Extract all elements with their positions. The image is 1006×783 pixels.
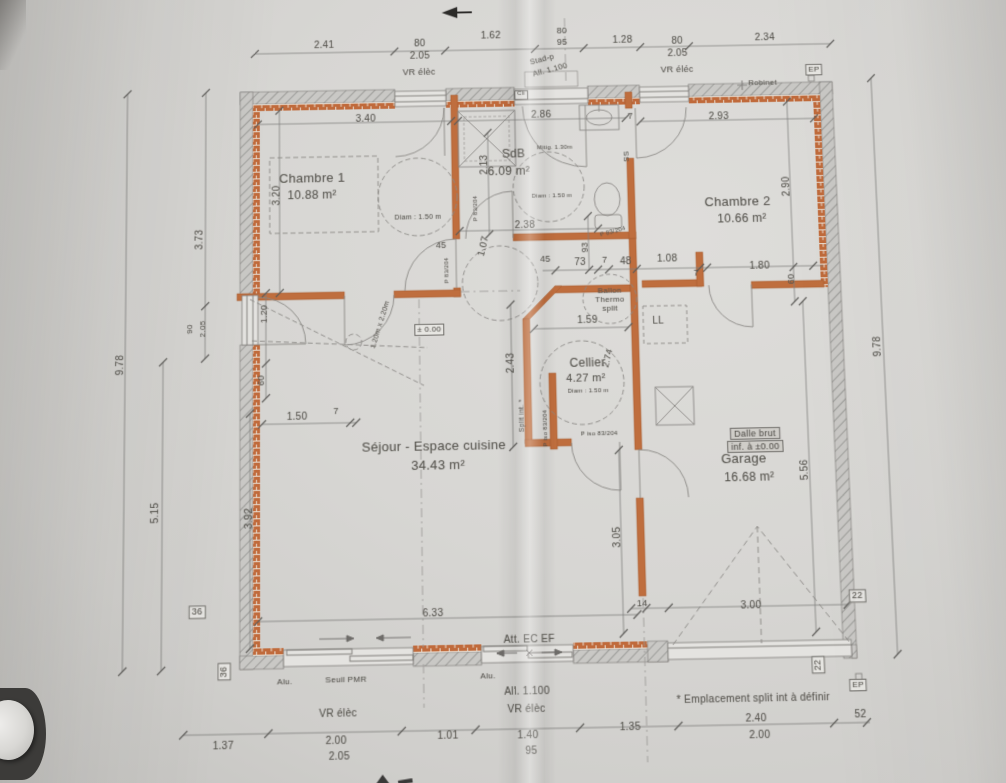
- dim-top-128: 1.28: [612, 34, 632, 45]
- vr-elec-top-right: VR éléc: [660, 64, 693, 74]
- dim-45a: 45: [436, 240, 447, 250]
- split-int: Split int. *: [518, 399, 526, 432]
- dim-top-80b: 80: [557, 26, 568, 36]
- dim-7-left: 7: [333, 406, 338, 416]
- alu-a: Alu.: [277, 676, 292, 686]
- diam-chambre1: Diam : 1.50 m: [394, 213, 441, 221]
- dim-392: 3.92: [243, 508, 254, 529]
- dim-633: 6.33: [422, 607, 443, 619]
- dim-top-205a: 2.05: [410, 50, 430, 61]
- mitig: Mitig. 1.30m: [537, 145, 573, 151]
- dim-7b: 7: [694, 268, 700, 278]
- dim-93: 93: [580, 242, 590, 253]
- vr-elec-top-left: VR élèc: [403, 67, 436, 77]
- alu-b: Alu.: [480, 671, 495, 681]
- dim-45b: 45: [540, 254, 551, 264]
- ep-marker-top: [808, 75, 814, 81]
- dim-340: 3.40: [356, 113, 376, 124]
- diam-cellier: Diam : 1.50 m: [568, 388, 609, 395]
- dim-bot-95: 95: [525, 745, 537, 757]
- dim-left-515: 5.15: [149, 502, 160, 523]
- bay-window-sejour: [284, 648, 414, 667]
- window-swing-chambre1: [395, 108, 445, 157]
- washing-machine: [643, 305, 688, 343]
- dim-top-205c: 2.05: [667, 48, 687, 59]
- porte-83-204-c: P 83/204: [444, 257, 450, 283]
- dim-159: 1.59: [577, 314, 598, 325]
- room-sejour-area: 34.43 m²: [411, 456, 465, 472]
- dim-bot-200b: 2.00: [749, 729, 771, 741]
- turning-circle-chambre1: [378, 157, 458, 236]
- ballon-line1: Ballon: [598, 285, 622, 294]
- ep-bottom: EP: [849, 679, 867, 692]
- robinet: Robinet: [748, 77, 777, 86]
- entry-door-opening: [514, 71, 588, 105]
- door-cellier-arc: [571, 442, 620, 491]
- dim-120: 1.20: [259, 305, 269, 324]
- dim-top-80a: 80: [414, 38, 426, 49]
- sliding-arrows: [319, 634, 411, 642]
- garage-vent-box: [655, 387, 694, 426]
- dim-ss: SS: [621, 151, 630, 162]
- dim-top-80c: 80: [671, 35, 683, 46]
- room-garage-area: 16.68 m²: [724, 469, 775, 484]
- room-sejour: Séjour - Espace cuisine: [362, 436, 506, 454]
- plan-sheet: 2.41802.051.6280951.28802.052.34VR élècS…: [0, 0, 1006, 783]
- box-36a: 36: [189, 605, 206, 619]
- room-sdb-area: 6.09 m²: [488, 164, 530, 178]
- bottom-edge-marks: [373, 774, 412, 783]
- dim-286: 2.86: [531, 109, 551, 120]
- dim-left-373: 3.73: [194, 229, 205, 249]
- dim-238: 2.38: [514, 219, 535, 230]
- plan-drawing: [0, 0, 1006, 783]
- dim-bot-140: 1.40: [517, 729, 538, 741]
- dim-60-right: 60: [786, 274, 796, 285]
- box-22b: 22: [811, 656, 825, 673]
- porte-iso-83-204-a: P iso 83/204: [543, 410, 550, 447]
- box-36b: 36: [218, 663, 232, 681]
- dim-bot-200a: 2.00: [326, 735, 347, 747]
- room-sdb: SdB: [502, 147, 525, 161]
- dim-left-978: 9.78: [115, 355, 126, 376]
- att-ec-ef: Att. EC EF: [503, 633, 554, 645]
- dim-213: 2.13: [479, 155, 490, 175]
- toilet: [594, 183, 622, 229]
- dim-bot-205: 2.05: [329, 751, 350, 763]
- garage-door-trace: [669, 525, 849, 645]
- dim-left-205: 2.05: [198, 321, 207, 338]
- ballon-line2: Thermo: [595, 294, 624, 303]
- room-chambre1: Chambre 1: [279, 170, 345, 186]
- floor-plan-photo: 2.41802.051.6280951.28802.052.34VR élècS…: [0, 0, 1006, 783]
- room-chambre2-area: 10.66 m²: [717, 211, 767, 225]
- dim-243: 2.43: [505, 353, 516, 374]
- room-chambre1-area: 10.88 m²: [288, 188, 337, 202]
- dim-bot-52: 52: [854, 708, 867, 720]
- north-arrow: [442, 7, 472, 19]
- dim-556: 5.56: [799, 459, 811, 480]
- dim-293: 2.93: [708, 111, 729, 122]
- attic-hatch: [250, 296, 428, 388]
- room-cellier-area: 4.27 m²: [566, 372, 606, 385]
- cli-tag: Cli: [514, 90, 528, 99]
- interior-walls: [237, 89, 837, 604]
- window-bottom-2: [481, 645, 573, 663]
- door-arcs: [258, 102, 759, 505]
- dim-150: 1.50: [287, 411, 308, 422]
- room-cellier: Cellier: [569, 355, 605, 370]
- turning-circle-sdb: [513, 151, 585, 222]
- dim-108: 1.08: [657, 253, 678, 264]
- dim-top-234: 2.34: [754, 32, 775, 43]
- dalle-brut-line1: Dalle brut: [730, 427, 780, 440]
- vr-elec-bottom-1: VR élèc: [319, 707, 357, 719]
- turning-circle-hall: [462, 245, 539, 321]
- ballon-line3: split: [602, 303, 618, 312]
- door-garage-arc: [639, 449, 689, 498]
- dim-14: 14: [637, 598, 648, 608]
- room-garage: Garage: [721, 450, 767, 466]
- porte-83-204-a: P 83/204: [473, 196, 479, 222]
- dim-7a: 7: [602, 255, 608, 265]
- dim-bot-135: 1.35: [620, 721, 641, 733]
- dim-bot-137: 1.37: [213, 740, 234, 752]
- dim-300: 3.00: [740, 599, 761, 611]
- all-1100-bottom: All. 1.100: [504, 685, 550, 697]
- door-chambre2-arc: [635, 107, 688, 158]
- dim-bot-101: 1.01: [437, 730, 458, 742]
- opening-garage-chambre2: [709, 284, 753, 327]
- dim-top-95b: 95: [557, 37, 568, 47]
- dim-top-162: 1.62: [481, 30, 501, 41]
- ep-top: EP: [805, 64, 822, 76]
- ll-lave-linge: LL: [652, 315, 664, 326]
- window-chambre2-top: [639, 86, 688, 102]
- dim-180: 1.80: [749, 260, 770, 271]
- dim-320: 3.20: [271, 185, 282, 205]
- dim-73: 73: [574, 257, 586, 268]
- diam-sdb: Diam : 1.50 m: [531, 193, 572, 200]
- dim-48: 48: [620, 256, 632, 267]
- dim-right-290: 2.90: [780, 176, 792, 196]
- dim-7c: 7: [628, 111, 633, 121]
- seuil-pmr: Seuil PMR: [325, 674, 366, 684]
- room-chambre2: Chambre 2: [704, 193, 771, 209]
- niveau-000: ± 0.00: [414, 324, 444, 336]
- window-chambre1-top: [395, 91, 446, 107]
- dim-top-241: 2.41: [314, 40, 334, 51]
- dim-bot-240: 2.40: [745, 712, 767, 724]
- dim-left-90: 90: [185, 324, 194, 334]
- dim-305: 3.05: [611, 526, 623, 547]
- window-left: [242, 295, 258, 345]
- vr-elec-bottom-2: VR élèc: [507, 703, 545, 715]
- dim-right-978: 9.78: [871, 336, 883, 357]
- box-22a: 22: [849, 589, 866, 603]
- porte-iso-83-204-b: P iso 83/204: [581, 431, 618, 438]
- dim-60-left: 60: [256, 375, 266, 386]
